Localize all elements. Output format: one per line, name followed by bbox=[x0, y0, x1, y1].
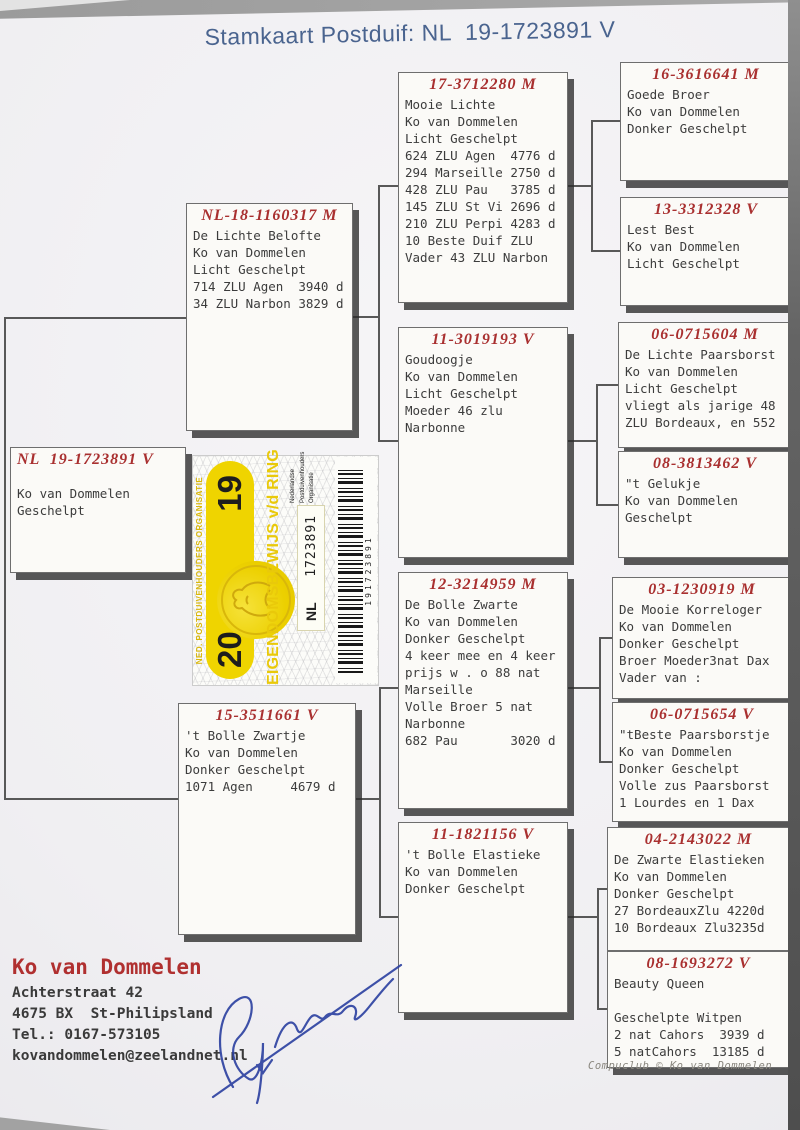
pedigree-connector bbox=[379, 688, 381, 917]
pedigree-connector bbox=[568, 916, 599, 918]
pedigree-connector bbox=[4, 318, 6, 800]
pedigree-connector bbox=[568, 687, 601, 689]
pigeon-details: De Zwarte Elastieken Ko van Dommelen Don… bbox=[614, 851, 783, 936]
pedigree-box-dam: 15-3511661 V 't Bolle Zwartje Ko van Dom… bbox=[178, 703, 356, 935]
ring-number: NL 19-1723891 V bbox=[17, 451, 179, 469]
pigeon-details: De Bolle Zwarte Ko van Dommelen Donker G… bbox=[405, 596, 561, 749]
handwritten-signature bbox=[205, 925, 405, 1105]
pigeon-details: Goede Broer Ko van Dommelen Donker Gesch… bbox=[627, 86, 785, 137]
pedigree-connector bbox=[379, 687, 398, 689]
photo-edge bbox=[788, 0, 800, 1130]
sticker-org-text: NED. POSTDUIVENHOUDERS ORGANISATIE bbox=[195, 456, 204, 685]
ring-number: 13-3312328 V bbox=[627, 201, 785, 219]
ring-number: 1723891 bbox=[304, 515, 319, 577]
ring-number: 03-1230919 M bbox=[619, 581, 785, 599]
ring-number: 17-3712280 M bbox=[405, 76, 561, 94]
pigeon-details: "tBeste Paarsborstje Ko van Dommelen Don… bbox=[619, 726, 785, 811]
pigeon-details: 't Bolle Elastieke Ko van Dommelen Donke… bbox=[405, 846, 561, 897]
pedigree-connector bbox=[591, 121, 593, 251]
pedigree-box: 11-3019193 V Goudoogje Ko van Dommelen L… bbox=[398, 327, 568, 558]
pedigree-connector bbox=[568, 440, 598, 442]
pedigree-connector bbox=[597, 1008, 607, 1010]
pedigree-box: 03-1230919 M De Mooie Korreloger Ko van … bbox=[612, 577, 792, 699]
ring-number: 12-3214959 M bbox=[405, 576, 561, 594]
pedigree-connector bbox=[596, 385, 598, 505]
pedigree-connector bbox=[379, 916, 398, 918]
pigeon-details: De Lichte Belofte Ko van Dommelen Licht … bbox=[193, 227, 346, 312]
ring-ownership-sticker: NED. POSTDUIVENHOUDERS ORGANISATIE 20 19… bbox=[192, 455, 379, 686]
pedigree-box: 11-1821156 V 't Bolle Elastieke Ko van D… bbox=[398, 822, 568, 1013]
ring-number: 06-0715654 V bbox=[619, 706, 785, 724]
ring-country: NL bbox=[303, 602, 319, 621]
pedigree-connector bbox=[591, 120, 620, 122]
npo-small-text: Nederlandse Postduivenhouders Organisati… bbox=[289, 457, 318, 503]
pedigree-connector bbox=[596, 384, 618, 386]
ring-number: 15-3511661 V bbox=[185, 707, 349, 725]
ring-number: 11-3019193 V bbox=[405, 331, 561, 349]
pedigree-connector bbox=[599, 761, 612, 763]
pigeon-details: De Lichte Paarsborst Ko van Dommelen Lic… bbox=[625, 346, 785, 431]
ring-number: 08-1693272 V bbox=[614, 955, 783, 973]
ring-number: 08-3813462 V bbox=[625, 455, 785, 473]
ring-number: 16-3616641 M bbox=[627, 66, 785, 84]
pedigree-box: 04-2143022 M De Zwarte Elastieken Ko van… bbox=[607, 827, 790, 951]
pedigree-connector bbox=[378, 186, 380, 441]
sticker-main-text: EIGENDOMSBEWIJS v/d RING bbox=[265, 456, 283, 685]
barcode bbox=[338, 466, 363, 673]
sticker-year: 19 bbox=[211, 475, 249, 512]
pedigree-connector bbox=[568, 185, 593, 187]
pedigree-box: 08-1693272 V Beauty Queen Geschelpte Wit… bbox=[607, 951, 790, 1068]
pedigree-connector bbox=[4, 317, 186, 319]
barcode-number: 191723891 bbox=[364, 456, 373, 685]
pedigree-box: 06-0715604 M De Lichte Paarsborst Ko van… bbox=[618, 322, 792, 448]
pedigree-box: 13-3312328 V Lest Best Ko van Dommelen L… bbox=[620, 197, 792, 306]
pedigree-box: 08-3813462 V "t Gelukje Ko van Dommelen … bbox=[618, 451, 792, 558]
photo-edge bbox=[0, 1112, 110, 1130]
pedigree-box: 12-3214959 M De Bolle Zwarte Ko van Domm… bbox=[398, 572, 568, 809]
pedigree-connector bbox=[596, 504, 618, 506]
pigeon-details: Mooie Lichte Ko van Dommelen Licht Gesch… bbox=[405, 96, 561, 266]
pigeon-details: Goudoogje Ko van Dommelen Licht Geschelp… bbox=[405, 351, 561, 436]
pedigree-connector bbox=[355, 798, 381, 800]
pigeon-details: "t Gelukje Ko van Dommelen Geschelpt bbox=[625, 475, 785, 526]
pedigree-connector bbox=[597, 888, 607, 890]
sticker-ring-strip: NL 1723891 bbox=[297, 505, 325, 631]
pedigree-box: 06-0715654 V "tBeste Paarsborstje Ko van… bbox=[612, 702, 792, 822]
pedigree-connector bbox=[378, 440, 398, 442]
pedigree-connector bbox=[591, 250, 620, 252]
pigeon-details: Lest Best Ko van Dommelen Licht Geschelp… bbox=[627, 221, 785, 272]
pigeon-details: Beauty Queen Geschelpte Witpen 2 nat Cah… bbox=[614, 975, 783, 1060]
ring-number: 06-0715604 M bbox=[625, 326, 785, 344]
pedigree-box: 17-3712280 M Mooie Lichte Ko van Dommele… bbox=[398, 72, 568, 303]
ring-number: 11-1821156 V bbox=[405, 826, 561, 844]
pedigree-connector bbox=[352, 316, 380, 318]
pigeon-details: Ko van Dommelen Geschelpt bbox=[17, 471, 179, 519]
pedigree-connector bbox=[378, 185, 398, 187]
pedigree-box-sire: NL-18-1160317 M De Lichte Belofte Ko van… bbox=[186, 203, 353, 431]
pigeon-details: De Mooie Korreloger Ko van Dommelen Donk… bbox=[619, 601, 785, 686]
pedigree-box: 16-3616641 M Goede Broer Ko van Dommelen… bbox=[620, 62, 792, 181]
ring-number: 04-2143022 M bbox=[614, 831, 783, 849]
pedigree-connector bbox=[599, 637, 612, 639]
ring-number: NL-18-1160317 M bbox=[193, 207, 346, 225]
pedigree-connector bbox=[4, 798, 178, 800]
pedigree-box-subject: NL 19-1723891 V Ko van Dommelen Geschelp… bbox=[10, 447, 186, 573]
pedigree-connector bbox=[597, 889, 599, 1009]
page-title: Stamkaart Postduif: NL 19-1723891 V bbox=[100, 14, 720, 53]
npo-lion-emblem bbox=[217, 561, 295, 639]
software-credit: Compuclub © Ko van Dommelen bbox=[588, 1060, 798, 1072]
pedigree-connector bbox=[599, 638, 601, 762]
scanned-pedigree-card: Stamkaart Postduif: NL 19-1723891 V NL 1… bbox=[0, 0, 800, 1130]
pigeon-details: 't Bolle Zwartje Ko van Dommelen Donker … bbox=[185, 727, 349, 795]
